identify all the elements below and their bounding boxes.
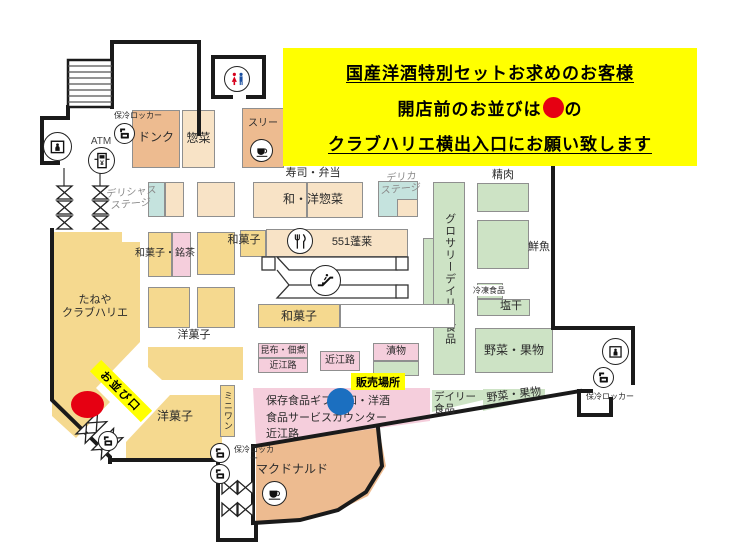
stairs [68, 60, 112, 107]
banner-line-2: 開店前のお並びは の [398, 95, 583, 120]
yogashi-mid-label: 洋菓子 [168, 329, 220, 342]
wayo-sozai-label: 和・洋惣菜 [279, 192, 347, 206]
tsukemono-label: 漬物 [374, 344, 418, 360]
banner-line-2-prefix: 開店前のお並びは [398, 95, 542, 120]
area-omiji: 近江路 [320, 351, 360, 371]
area-yellow-2 [148, 287, 190, 328]
svg-text:¥: ¥ [100, 160, 104, 167]
area-kombu-top: 昆布・佃煮 [258, 343, 308, 358]
yogashi-bottom-label: 洋菓子 [146, 409, 204, 423]
cold-locker-icon [593, 367, 614, 388]
horai-551-label: 551蓬莱 [324, 235, 380, 249]
atm-label: ATM [86, 136, 116, 147]
daily-label: デイリー 食品 [434, 391, 480, 415]
sales-point-tag: 販売場所 [351, 373, 405, 390]
wagashi-551-label: 和菓子 [220, 234, 268, 247]
area-delica-cream [397, 199, 418, 217]
cold-locker-icon [210, 443, 230, 463]
floor-map: グロサリーデイリー食品 野菜・果物 昆布・佃煮 近江路 近江路 漬物 ミニワン [0, 0, 735, 546]
sozai-label: 惣菜 [182, 131, 215, 146]
delica-stage-label: デリカ ステージ [373, 169, 429, 200]
area-sengyo [477, 220, 529, 269]
banner-line-3: クラブハリエ横出入口にお願い致します [328, 130, 652, 155]
taneya-label: たねや クラブハリエ [58, 292, 132, 322]
area-kombu-bottom: 近江路 [258, 358, 308, 373]
area-miniwan: ミニワン [220, 385, 235, 437]
area-white-mid [340, 304, 455, 328]
red-dot-legend-icon [543, 97, 564, 118]
area-delicious-cream [165, 182, 184, 217]
fork-knife-icon [287, 228, 313, 254]
area-grocery: グロサリーデイリー食品 [433, 182, 465, 375]
seiniku-label: 精肉 [488, 169, 518, 181]
wagashi-meicha-label: 和菓子・銘茶 [134, 248, 196, 260]
notice-banner: 国産洋酒特別セットお求めのお客様 開店前のお並びは の クラブハリエ横出入口にお… [283, 48, 697, 166]
red-dot-marker [71, 391, 104, 418]
donq-label: ドンク [133, 130, 179, 145]
blue-dot-marker [327, 388, 354, 415]
cold-locker-icon [98, 431, 118, 451]
kombu-bottom-label: 近江路 [259, 359, 307, 372]
escalator-symbols-left [57, 186, 108, 229]
atm-icon: ¥ [88, 147, 115, 174]
locker-right-label: 保冷ロッカー [585, 392, 635, 402]
elevator-icon [602, 338, 629, 365]
shiokan-label: 塩干 [497, 300, 525, 313]
area-seiniku [477, 183, 529, 212]
cold-locker-icon [114, 123, 135, 144]
restroom-icon [224, 66, 250, 92]
cold-locker-icon [210, 464, 230, 484]
sengyo-label: 鮮魚 [526, 241, 552, 254]
area-yasai-right: 野菜・果物 [475, 328, 553, 373]
three-label: スリー [245, 118, 281, 130]
coffee-cup-icon [250, 139, 273, 162]
area-white-slant [546, 386, 578, 399]
area-yellow-wide [148, 347, 243, 380]
elevator-icon [43, 132, 72, 161]
area-yellow-3 [197, 287, 235, 328]
sushi-bento-label: 寿司・弁当 [281, 167, 345, 179]
yasai-right-label: 野菜・果物 [476, 329, 552, 372]
coffee-cup-icon [262, 481, 287, 506]
area-deli-1 [197, 182, 235, 217]
grocery-label: グロサリーデイリー食品 [434, 183, 464, 374]
kombu-top-label: 昆布・佃煮 [259, 344, 307, 357]
escalator-symbols-bottom [222, 481, 253, 516]
reitou-label: 冷凍食品 [470, 285, 508, 296]
miniwan-label: ミニワン [221, 386, 234, 436]
banner-line-2-suffix: の [565, 95, 583, 120]
banner-line-1: 国産洋酒特別セットお求めのお客様 [346, 59, 634, 84]
locker-bottom-label: 保冷ロッカー [231, 449, 277, 459]
wagashi-mid-label: 和菓子 [266, 308, 332, 324]
escalator-icon [310, 265, 341, 296]
area-tsukemono: 漬物 [373, 343, 419, 361]
omiji-label: 近江路 [321, 352, 359, 370]
delicious-stage-label: デリシャス ステージ [101, 184, 161, 215]
mcdonalds-label: マクドナルド [256, 462, 328, 476]
locker-top-label: 保冷ロッカー [112, 111, 164, 121]
